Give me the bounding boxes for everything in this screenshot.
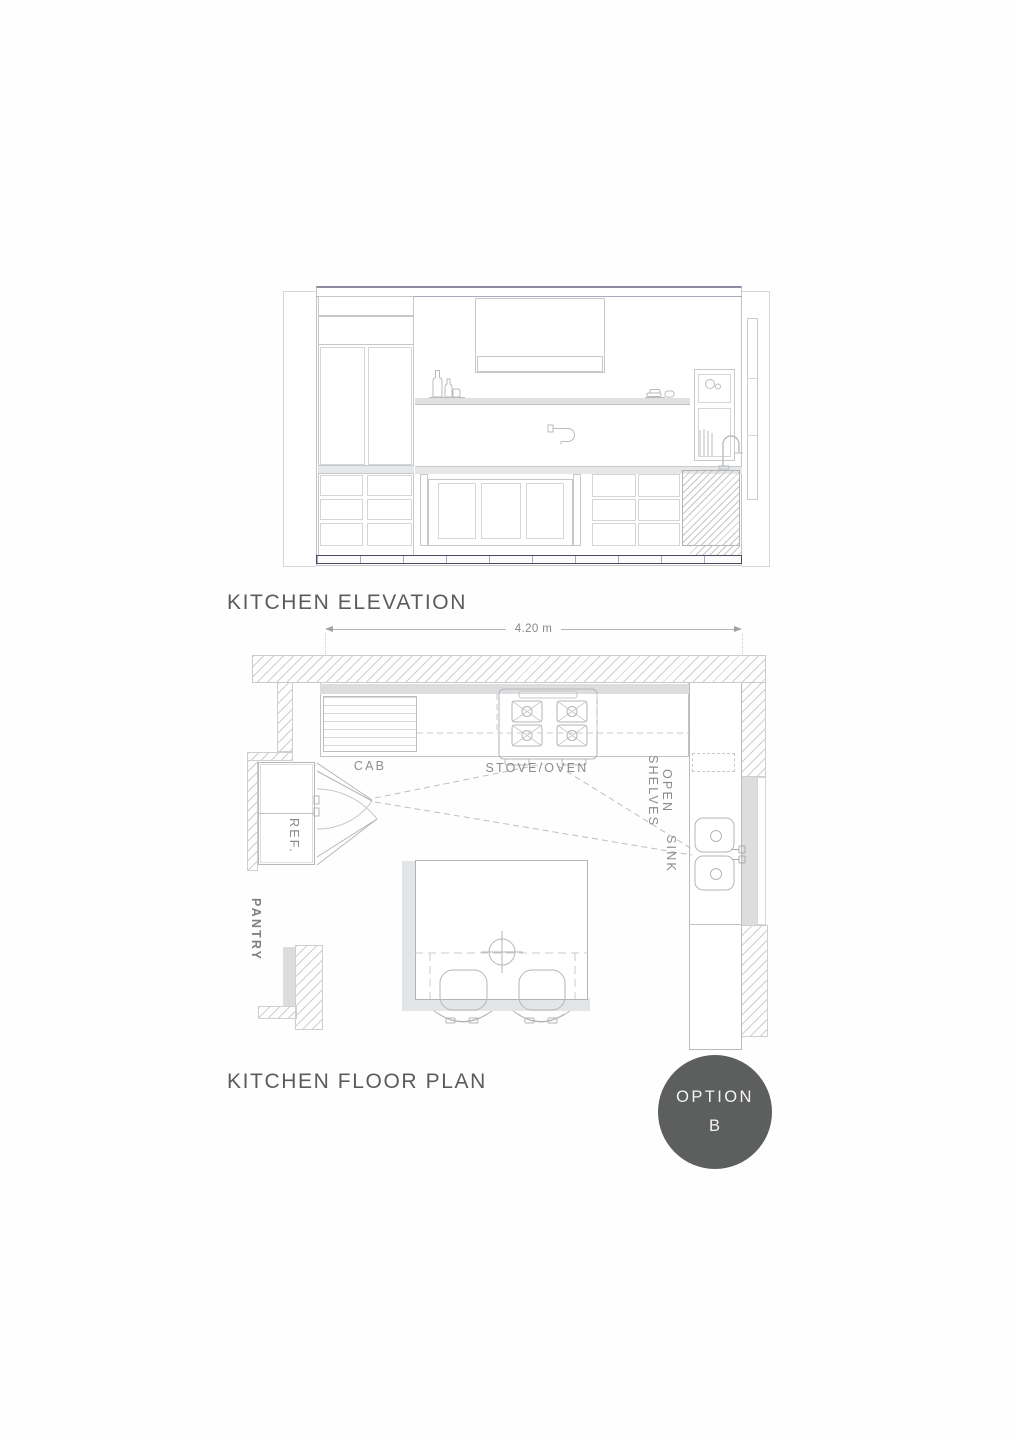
refrigerator-door-swings <box>314 763 377 865</box>
floor-plan-title: KITCHEN FLOOR PLAN <box>227 1070 487 1094</box>
vase-icon <box>716 384 721 389</box>
dimension-arrow-right-icon <box>734 626 742 632</box>
vase-icon <box>706 380 715 389</box>
glass-icon <box>453 389 460 397</box>
upper-cabinet-dashed-lines <box>417 694 689 733</box>
sink-icon <box>695 818 734 890</box>
label-sink: SINK <box>664 835 678 873</box>
label-open-word: OPEN <box>660 769 674 813</box>
label-ref: REF. <box>287 818 301 854</box>
label-cab: CAB <box>340 759 400 773</box>
dish-icon <box>647 393 661 397</box>
gooseneck-faucet-icon <box>719 436 743 469</box>
label-stove-oven: STOVE/OVEN <box>477 761 597 775</box>
work-triangle-lines <box>375 764 692 855</box>
kitchen-elevation-drawing <box>283 283 770 573</box>
dish-icon <box>650 390 660 394</box>
dimension-arrow-left-icon <box>325 626 333 632</box>
stool-icon <box>513 970 570 1023</box>
sink-faucet-icon <box>732 846 745 863</box>
prep-sink-icon <box>481 931 523 973</box>
option-badge: OPTION B <box>658 1055 772 1169</box>
bottle-icon <box>445 379 452 397</box>
plan-linework <box>240 640 775 1060</box>
elevation-title: KITCHEN ELEVATION <box>227 591 467 615</box>
label-pantry: PANTRY <box>249 898 263 961</box>
dimension-line: 4.20 m <box>325 621 742 637</box>
drawing-sheet: KITCHEN ELEVATION 4.20 m <box>0 0 1015 1440</box>
option-badge-line2: B <box>709 1117 721 1136</box>
stool-icon <box>434 970 492 1023</box>
books-icon <box>700 429 712 456</box>
dimension-label: 4.20 m <box>506 623 562 635</box>
pot-filler-faucet-icon <box>548 425 575 445</box>
label-open-shelves: SHELVES OPEN <box>646 755 674 827</box>
label-shelves-word: SHELVES <box>646 755 660 827</box>
kitchen-floor-plan-drawing: CAB STOVE/OVEN SHELVES OPEN SINK REF. PA… <box>240 640 775 1060</box>
bottle-icon <box>433 371 442 398</box>
bowl-icon <box>665 391 674 397</box>
elevation-decor-glyphs <box>283 283 770 573</box>
stove-top-icon <box>499 689 597 765</box>
option-badge-line1: OPTION <box>676 1088 754 1107</box>
